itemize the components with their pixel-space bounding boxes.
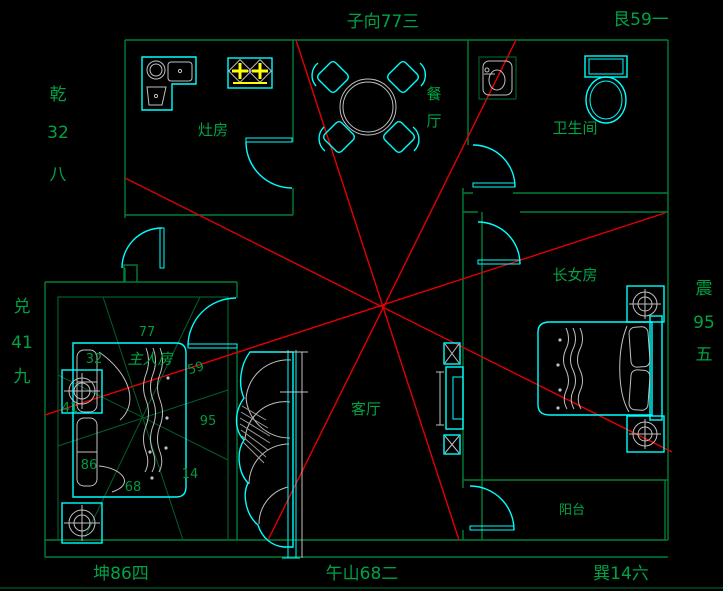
gas-stove: [228, 58, 272, 88]
label-dining-2: 厅: [426, 112, 441, 130]
star-num-lower-left: 86: [81, 458, 98, 473]
daughter-room-door: [478, 222, 520, 264]
label-zhen-trigram: 五: [696, 345, 713, 365]
label-daughter-room: 长女房: [552, 266, 597, 284]
label-zhen-char: 震: [696, 279, 713, 299]
label-living-room: 客厅: [351, 400, 381, 418]
star-num-top: 77: [139, 325, 156, 340]
floorplan-drawing: 子向77三 艮59一 乾 32 八 兑 41 九 震 95 五 坤86四 午山6…: [0, 0, 723, 591]
burner-left: [229, 60, 252, 83]
bathroom-door: [473, 145, 515, 187]
label-balcony: 阳台: [559, 503, 585, 518]
star-num-lower-right: 14: [182, 467, 199, 482]
label-dui-trigram: 九: [14, 367, 31, 387]
red-analysis-lines: [45, 40, 672, 540]
kitchen-sink-counter: [142, 57, 196, 110]
label-dining-1: 餐: [426, 85, 441, 103]
entry-door: [122, 228, 164, 268]
daughter-nightstand-bottom: [627, 416, 664, 452]
master-nightstand-bottom: [62, 503, 102, 543]
toilet: [585, 56, 627, 123]
living-sofa-screen: [237, 350, 309, 558]
star-num-left: 41: [62, 401, 79, 416]
label-xun-bottomright: 巽14六: [593, 564, 649, 584]
label-master-room: 主人房: [127, 350, 174, 368]
star-num-upper-right: 59: [186, 359, 206, 378]
label-dui-num: 41: [11, 333, 33, 353]
balcony-door: [470, 486, 514, 530]
label-qian-num: 32: [47, 123, 69, 143]
label-dui-char: 兑: [14, 297, 31, 317]
star-num-upper-left: 32: [86, 352, 103, 367]
wall-pillar: [124, 265, 137, 282]
label-qian-char: 乾: [50, 85, 67, 105]
burner-right: [249, 60, 272, 83]
label-facing-top: 子向77三: [347, 12, 420, 32]
star-num-bottom: 68: [125, 480, 142, 495]
kitchen-door: [246, 138, 292, 188]
daughter-bed: [538, 316, 662, 420]
cad-floorplan-canvas: 子向77三 艮59一 乾 32 八 兑 41 九 震 95 五 坤86四 午山6…: [0, 0, 723, 591]
label-gen-topright: 艮59一: [613, 10, 669, 30]
label-zhen-num: 95: [693, 313, 715, 333]
label-qian-trigram: 八: [50, 165, 67, 185]
master-door: [188, 298, 237, 348]
label-bathroom: 卫生间: [552, 119, 597, 137]
tv-unit: [436, 343, 463, 454]
star-num-right: 95: [200, 414, 217, 429]
label-kun-bottomleft: 坤86四: [93, 564, 149, 584]
label-kitchen: 灶房: [198, 121, 228, 139]
label-mountain-bottom: 午山68二: [326, 564, 399, 584]
